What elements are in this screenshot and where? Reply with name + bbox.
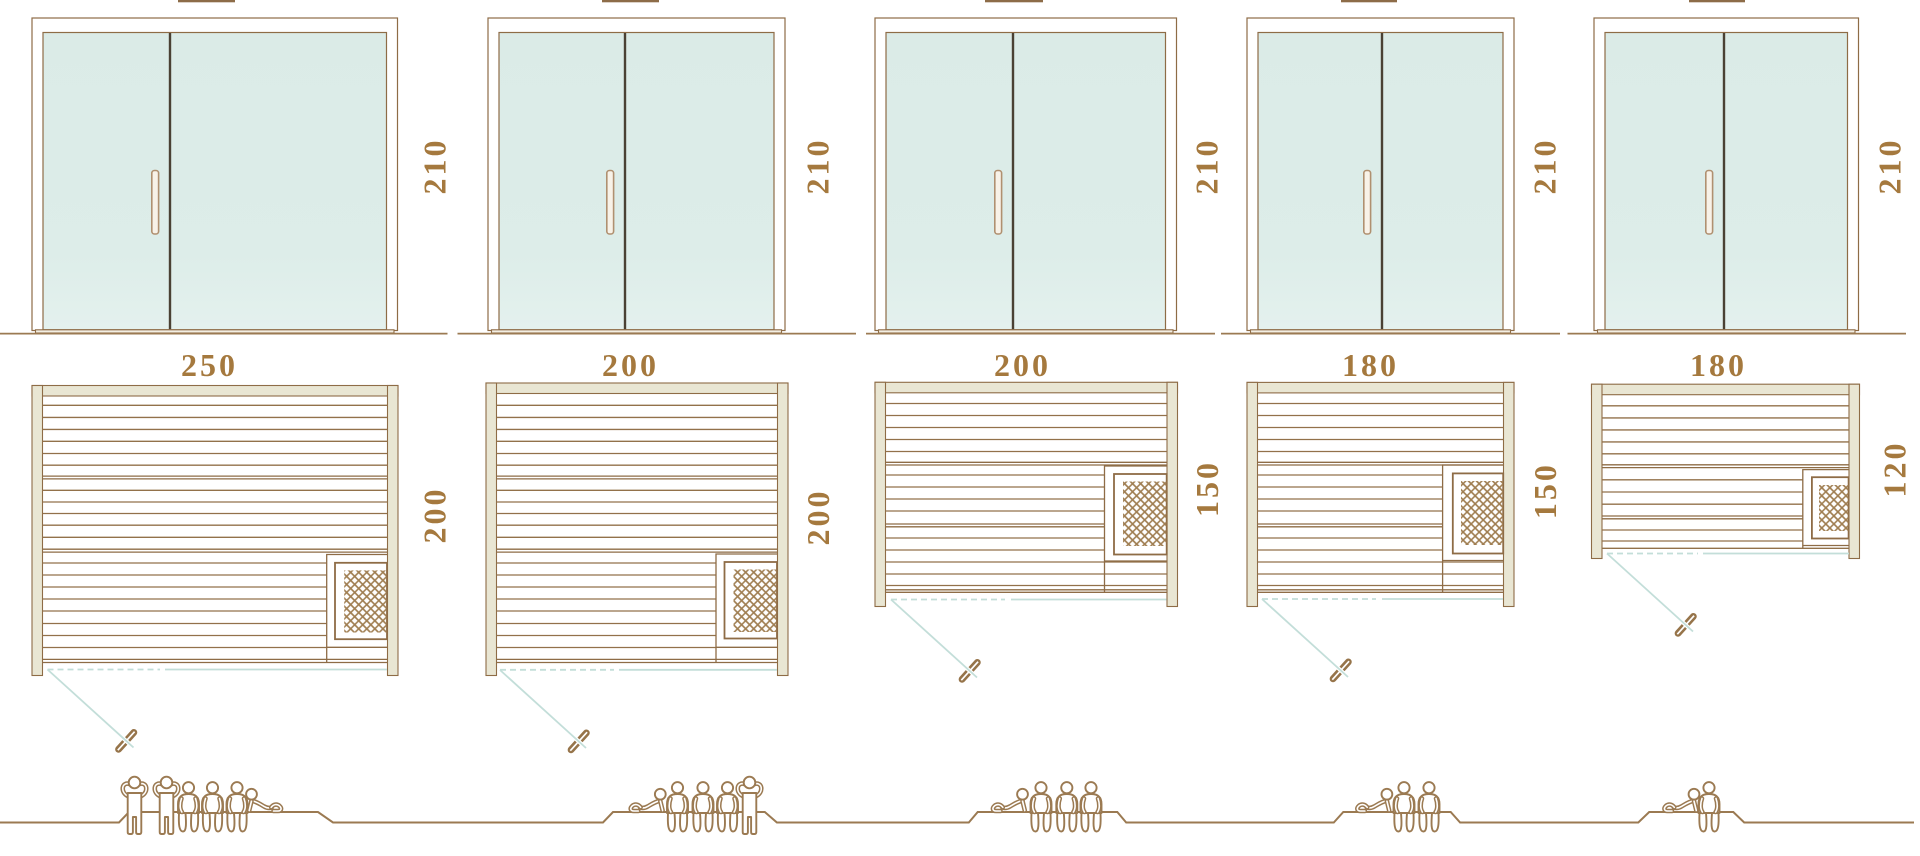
svg-text:250: 250 bbox=[181, 347, 238, 383]
svg-text:210: 210 bbox=[1871, 138, 1907, 195]
svg-text:210: 210 bbox=[799, 138, 835, 195]
svg-text:150: 150 bbox=[1527, 462, 1563, 519]
svg-text:120: 120 bbox=[1877, 441, 1913, 498]
svg-text:150: 150 bbox=[1189, 460, 1225, 517]
svg-text:210: 210 bbox=[416, 138, 452, 195]
svg-text:200: 200 bbox=[416, 487, 452, 544]
svg-text:200: 200 bbox=[800, 489, 836, 546]
svg-text:200: 200 bbox=[602, 347, 659, 383]
svg-text:200: 200 bbox=[994, 347, 1051, 383]
svg-text:180: 180 bbox=[1690, 347, 1747, 383]
svg-text:210: 210 bbox=[1526, 138, 1562, 195]
svg-text:180: 180 bbox=[1342, 347, 1399, 383]
svg-text:210: 210 bbox=[1188, 138, 1224, 195]
